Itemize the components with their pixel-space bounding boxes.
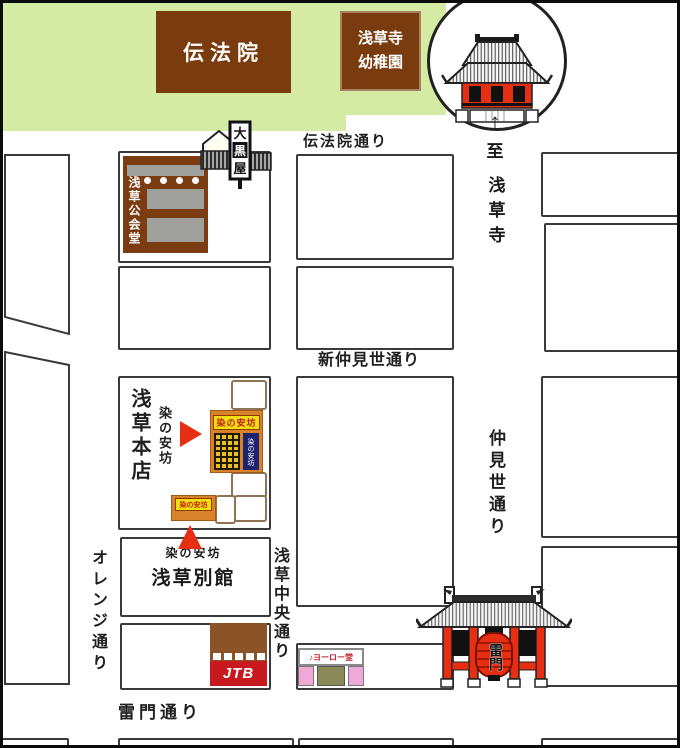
kokaido-roof-band <box>127 165 204 176</box>
kindergarten-label-line1: 浅草寺 <box>358 31 403 47</box>
denboin-label: 伝法院 <box>183 37 264 67</box>
pointer-triangle-right-icon <box>180 421 202 447</box>
kindergarten-box: 浅草寺 幼稚園 <box>340 11 421 91</box>
city-block <box>541 738 680 748</box>
street-label-kaminarimon-dori: 雷門通り <box>118 698 202 723</box>
honten-block-label: 浅草本店 <box>125 388 154 484</box>
city-block <box>541 376 680 538</box>
small-building <box>215 495 236 524</box>
daikokuya-char-3: 屋 <box>233 161 246 176</box>
street-label-asakusa-chuo-dori: 浅草中央通り <box>267 547 291 661</box>
city-block <box>541 152 680 217</box>
kokaido-lights <box>144 177 199 184</box>
city-block <box>296 376 454 607</box>
honten-noren-banner: 染の安坊 <box>243 433 259 470</box>
city-block <box>298 738 454 748</box>
kokaido-windows <box>147 189 204 209</box>
kokaido-windows <box>147 218 204 242</box>
street-label-denboin-dori: 伝法院通り <box>303 130 388 151</box>
honten-shop-sign: 染の安坊 <box>213 415 260 430</box>
city-block <box>544 223 680 352</box>
honten-shop-windows <box>214 433 240 470</box>
yorodo-wall <box>298 666 314 686</box>
bekkan-shop-sign: 染の安坊 <box>175 498 212 511</box>
yorodo-sign: ♪ヨーロー堂 <box>298 648 364 666</box>
city-block <box>0 738 69 748</box>
daikokuya-char-1: 大 <box>233 126 246 141</box>
asakusa-access-map: 伝法院 浅草寺 幼稚園 <box>0 0 680 748</box>
kokaido-label: 浅草公会堂 <box>126 176 143 246</box>
up-arrow-icon: ↑ <box>482 111 508 133</box>
small-building <box>234 495 267 522</box>
denboin-box: 伝法院 <box>156 11 291 93</box>
city-block <box>296 154 454 260</box>
honten-callout-label: 染の安坊 <box>155 406 174 466</box>
kindergarten-label-line2: 幼稚園 <box>358 55 403 71</box>
jtb-building-windows <box>210 651 267 661</box>
yorodo-shop: ♪ヨーロー堂 <box>298 648 364 686</box>
somenoanbo-bekkan-shop: 染の安坊 <box>171 495 216 521</box>
destination-sensoji: 浅草寺 <box>483 176 508 251</box>
to-character: 至 <box>482 137 508 162</box>
jtb-building-top <box>210 623 267 651</box>
yorodo-entrance <box>317 666 345 686</box>
daikokuya-sign: 大 黒 屋 <box>199 119 275 195</box>
direction-to-sensoji: ↑ 至 浅草寺 <box>482 111 508 251</box>
kaminarimon-lantern-label: 雷門 <box>481 634 507 680</box>
bekkan-annex-label: 染の安坊 浅草別館 <box>120 544 267 590</box>
pointer-triangle-up-icon <box>178 525 202 549</box>
city-block <box>118 738 294 748</box>
bekkan-name-label: 浅草別館 <box>120 563 267 590</box>
jtb-logo: JTB <box>210 661 267 686</box>
street-label-orange-dori: オレンジ通り <box>85 549 109 675</box>
yorodo-wall <box>348 666 364 686</box>
street-label-nakamise-dori: 仲見世通り <box>483 429 508 539</box>
asakusa-kokaido-building: 浅草公会堂 <box>123 156 208 253</box>
left-city-blocks <box>3 148 73 693</box>
small-building <box>231 380 267 410</box>
city-block <box>118 266 271 350</box>
street-label-shin-nakamise-dori: 新仲見世通り <box>318 346 420 370</box>
daikokuya-char-2: 黒 <box>234 144 246 158</box>
somenoanbo-honten-shop: 染の安坊 染の安坊 <box>210 410 263 473</box>
city-block <box>296 266 454 350</box>
jtb-building: JTB <box>210 623 267 686</box>
